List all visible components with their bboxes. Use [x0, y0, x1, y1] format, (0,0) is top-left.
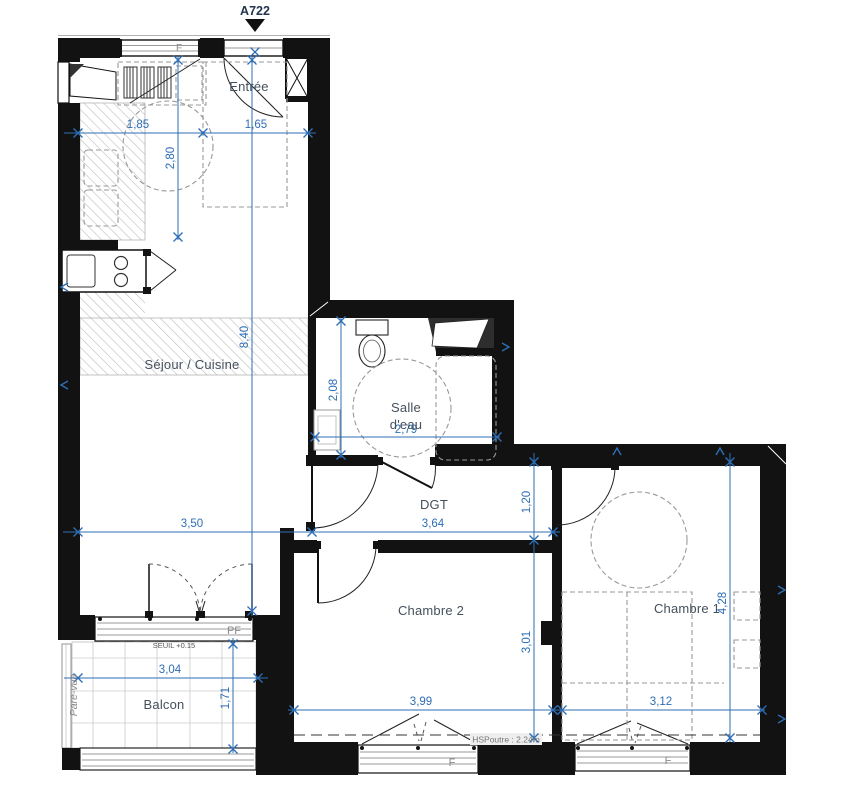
wall-segment [280, 742, 358, 775]
wall-segment [308, 300, 514, 318]
room-label-balcon: Balcon [144, 697, 185, 712]
dim-sejour-h: 8,40 [239, 326, 251, 348]
windows [58, 39, 690, 773]
dim-balcon-h: 1,71 [220, 687, 232, 709]
window-f-top [117, 39, 203, 57]
hs-poutre-note: HSPoutre : 2.24m [472, 735, 540, 745]
dim-chambre2-h: 3,01 [521, 631, 533, 653]
dim-balcon-w: 3,04 [159, 664, 182, 676]
kitchen-counter-hatch [80, 103, 308, 375]
wall-stub [58, 240, 118, 250]
window-label-f-chambre1: F [665, 755, 672, 767]
turning-circle [591, 492, 687, 588]
wall-segment [58, 38, 80, 62]
toilet [356, 320, 388, 367]
floor-plan-drawing: A722 [0, 0, 846, 800]
bathroom-duct [428, 318, 494, 356]
room-label-salle-deau-2: d'eau [390, 417, 422, 432]
bedside-table-outline [734, 640, 760, 668]
room-label-dgt: DGT [420, 497, 448, 512]
kitchen-appliance-bars [124, 67, 171, 98]
window-f-chambre1 [575, 721, 690, 771]
bedside-table-outline [734, 592, 760, 620]
chambre2-door [313, 541, 381, 603]
window-f-chambre2 [358, 714, 478, 773]
room-label-chambre1: Chambre 1 [654, 601, 720, 616]
window-left-casement [58, 62, 116, 103]
wall-segment [280, 528, 294, 618]
window-label-f-chambre2: F [449, 757, 456, 769]
annotations: F PF F F SEUIL +0.15 HSPoutre : 2.24m Pa… [68, 43, 672, 769]
window-label-pf: PF [227, 625, 241, 637]
dim-chambre2-w: 3,99 [410, 696, 432, 708]
bathroom-door [376, 457, 437, 488]
wall-segment [58, 615, 95, 640]
entry-arrow-icon [245, 19, 265, 32]
room-label-entree: Entrée [229, 79, 269, 94]
living-to-dgt-door [306, 462, 378, 531]
pf-double-door [145, 564, 253, 618]
dim-kitchen-w2: 1,65 [245, 119, 267, 131]
kitchen-unit-outline [118, 62, 206, 105]
wall-segment [760, 444, 786, 775]
wall-segment [308, 44, 330, 318]
dim-chambre1-w: 3,12 [650, 696, 672, 708]
dim-kitchen-w1: 1,85 [127, 119, 149, 131]
duct-shaft [286, 58, 308, 102]
wall-pilaster [541, 621, 560, 645]
wall-segment [435, 444, 492, 466]
dim-sejour-w: 3,50 [181, 518, 203, 530]
wall-segment [200, 38, 224, 58]
dim-bath-h: 2,08 [328, 379, 340, 401]
wall-segment [378, 540, 553, 553]
wall-segment [253, 615, 294, 640]
dim-kitchen-h: 2,80 [165, 147, 177, 169]
plan-reference-label: A722 [240, 4, 270, 18]
kitchen-sink-unit [62, 249, 176, 294]
dim-dgt-w: 3,64 [422, 518, 445, 530]
balcony-bottom-railing [62, 748, 256, 770]
room-label-salle-deau-1: Salle [391, 400, 421, 415]
room-label-chambre2: Chambre 2 [398, 603, 464, 618]
wall-segment [690, 742, 786, 775]
wall-segment [478, 742, 575, 775]
wall-segment [58, 103, 80, 638]
dim-dgt-h: 1,20 [521, 491, 533, 513]
room-label-sejour-cuisine: Séjour / Cuisine [145, 357, 240, 372]
window-label-f-top: F [176, 43, 182, 54]
pare-vue-note: Pare-vue [68, 674, 80, 717]
plan-reference-marker: A722 [240, 4, 270, 32]
wall-segment [552, 466, 562, 742]
wall-segment [492, 300, 514, 466]
seuil-note: SEUIL +0.15 [153, 641, 195, 650]
floor-plan-page: A722 [0, 0, 846, 800]
washbasin [314, 410, 340, 450]
